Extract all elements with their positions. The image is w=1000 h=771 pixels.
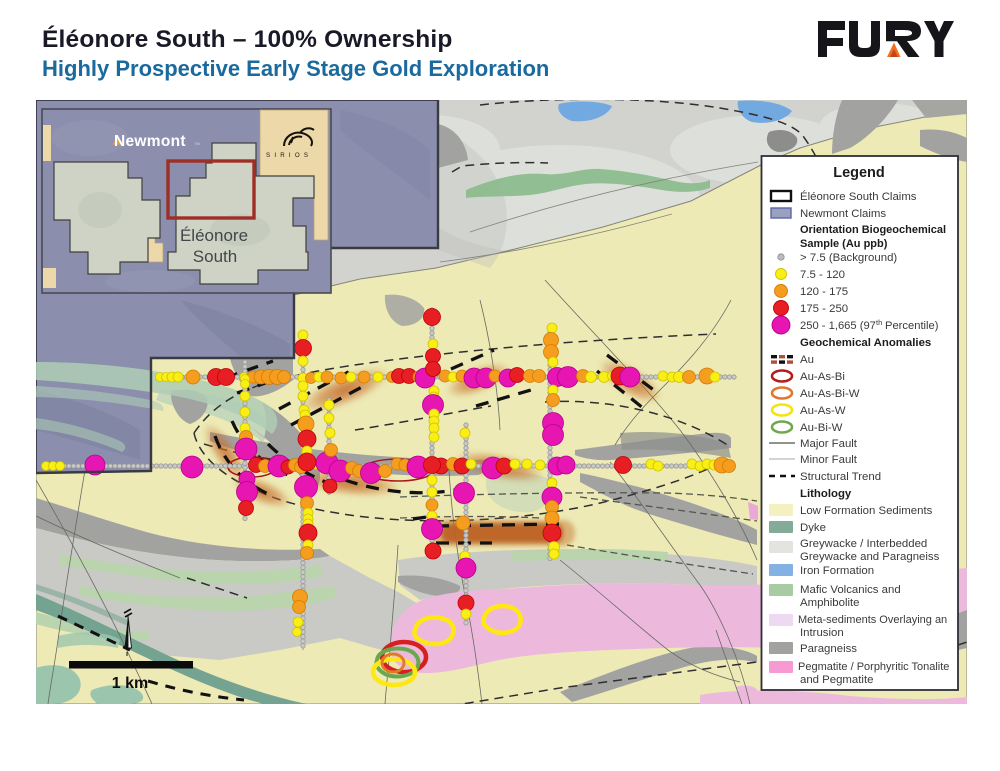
- svg-text:TM: TM: [194, 141, 200, 146]
- svg-text:Dyke: Dyke: [800, 522, 826, 534]
- svg-text:175 - 250: 175 - 250: [800, 303, 848, 315]
- svg-text:Greywacke and Paragneiss: Greywacke and Paragneiss: [800, 551, 940, 563]
- svg-text:Meta-sediments Overlaying an: Meta-sediments Overlaying an: [798, 614, 947, 626]
- svg-text:Pegmatite / Porphyritic Tonali: Pegmatite / Porphyritic Tonalite: [798, 661, 949, 673]
- svg-text:Au-As-W: Au-As-W: [800, 405, 846, 417]
- svg-text:Newmont Claims: Newmont Claims: [800, 208, 886, 220]
- svg-text:Structural Trend: Structural Trend: [800, 471, 881, 483]
- svg-text:South: South: [193, 247, 237, 266]
- svg-text:Major Fault: Major Fault: [800, 438, 858, 450]
- svg-text:SIRIOS: SIRIOS: [266, 152, 312, 159]
- svg-text:7.5 - 120: 7.5 - 120: [800, 269, 845, 281]
- svg-text:> 7.5 (Background): > 7.5 (Background): [800, 252, 897, 264]
- svg-text:120 - 175: 120 - 175: [800, 286, 848, 298]
- svg-text:Éléonore South Claims: Éléonore South Claims: [800, 190, 917, 203]
- svg-text:th: th: [876, 318, 882, 327]
- svg-text:Intrusion: Intrusion: [800, 627, 844, 639]
- svg-text:Lithology: Lithology: [800, 488, 852, 500]
- svg-text:Au-As-Bi: Au-As-Bi: [800, 371, 845, 383]
- svg-text:Amphibolite: Amphibolite: [800, 597, 860, 609]
- svg-text:and Pegmatite: and Pegmatite: [800, 674, 873, 686]
- svg-text:Paragneiss: Paragneiss: [800, 643, 857, 655]
- svg-text:Éléonore: Éléonore: [180, 226, 248, 245]
- svg-text:Iron Formation: Iron Formation: [800, 565, 874, 577]
- svg-text:250 - 1,665 (97: 250 - 1,665 (97: [800, 320, 876, 332]
- svg-text:Minor Fault: Minor Fault: [800, 454, 858, 466]
- svg-text:Newmont: Newmont: [114, 133, 186, 150]
- svg-text:Mafic Volcanics and: Mafic Volcanics and: [800, 584, 901, 596]
- svg-text:Au: Au: [800, 354, 814, 366]
- svg-text:1 km: 1 km: [112, 675, 148, 692]
- svg-text:Sample (Au ppb): Sample (Au ppb): [800, 238, 888, 250]
- svg-text:Au-As-Bi-W: Au-As-Bi-W: [800, 388, 860, 400]
- svg-text:Geochemical Anomalies: Geochemical Anomalies: [800, 337, 931, 349]
- svg-text:Legend: Legend: [833, 165, 885, 181]
- svg-text:Orientation Biogeochemical: Orientation Biogeochemical: [800, 224, 946, 236]
- svg-text:Percentile): Percentile): [885, 320, 939, 332]
- svg-text:Greywacke / Interbedded: Greywacke / Interbedded: [800, 538, 927, 550]
- svg-text:Low Formation Sediments: Low Formation Sediments: [800, 505, 933, 517]
- svg-text:Au-Bi-W: Au-Bi-W: [800, 422, 843, 434]
